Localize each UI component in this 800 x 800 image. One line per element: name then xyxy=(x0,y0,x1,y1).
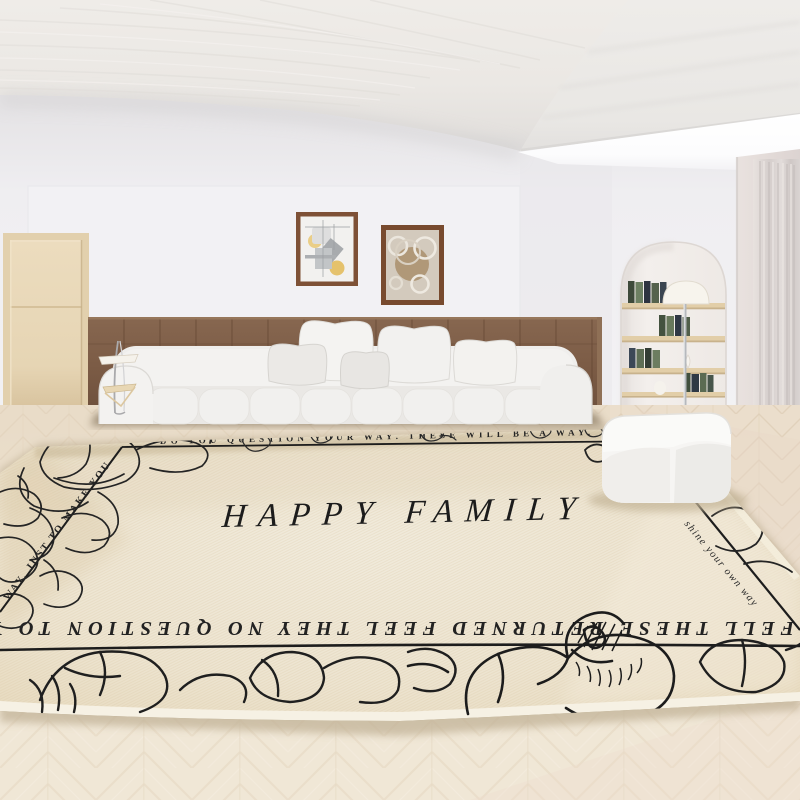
svg-text:FELL THESE RETURNED FEEL THEY: FELL THESE RETURNED FEEL THEY NO QUESTIO… xyxy=(0,617,795,639)
